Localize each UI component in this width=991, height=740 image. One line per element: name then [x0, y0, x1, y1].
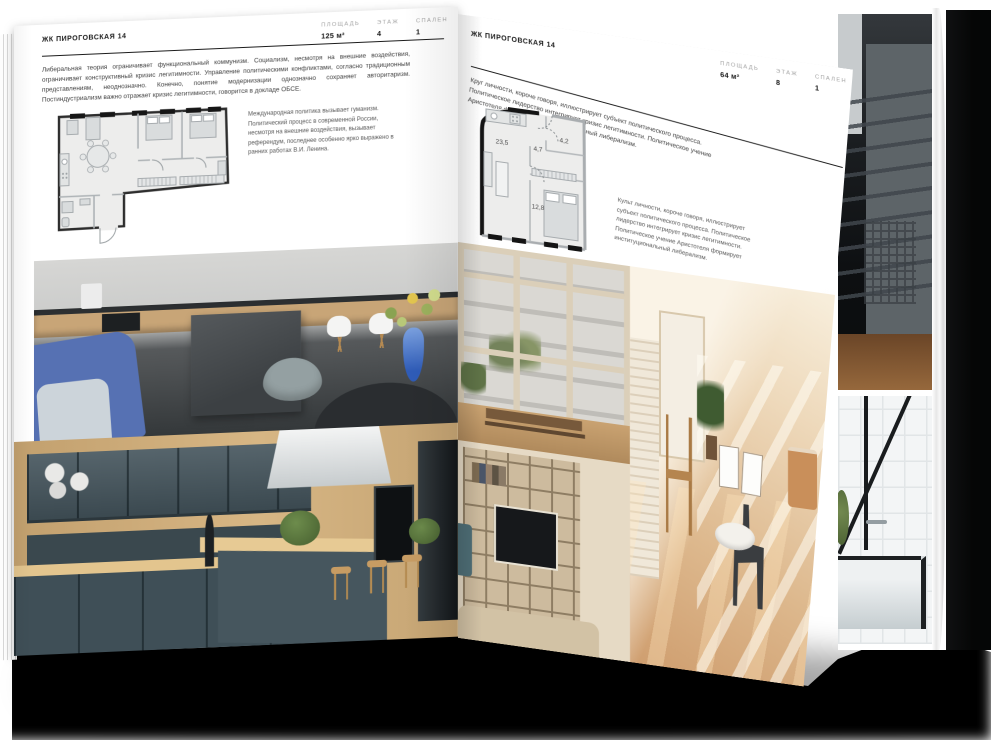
photo-sunny-room: [630, 266, 853, 693]
intro-paragraph-left: Либеральная теория ограничивает функцион…: [42, 50, 410, 106]
tv-shape: [494, 504, 558, 570]
stat-bedrooms-value: 1: [815, 83, 847, 96]
flowers-shape: [373, 283, 445, 333]
stat-bedrooms: СПАЛЕН 1: [416, 17, 448, 36]
plant-pot-shape: [706, 435, 717, 460]
wine-bottle-shape: [205, 515, 214, 567]
picture-frame-shape: [740, 452, 762, 497]
underside-page: [838, 8, 946, 650]
wooden-chair-shape: [666, 414, 693, 537]
stair-railing-shape: [864, 221, 916, 304]
wall-oven-shape: [374, 484, 414, 562]
chair-legs-shape: [369, 332, 395, 349]
armchair-shape: [788, 447, 817, 511]
project-title-right: ЖК ПИРОГОВСКАЯ 14: [471, 31, 555, 50]
stat-area: ПЛОЩАДЬ 125 м²: [321, 21, 360, 41]
oven-shape: [102, 312, 140, 332]
plant-shape: [461, 361, 485, 408]
stat-area-value: 64 м²: [720, 70, 759, 84]
room-area-hall: 4,7: [533, 146, 542, 154]
photo-kitchen-teal: [14, 423, 458, 656]
stat-floor-value: 8: [776, 78, 798, 90]
room-area-bath: 4,2: [559, 137, 568, 145]
floor-plan-left: [54, 104, 240, 248]
stat-floor-label: ЭТАЖ: [377, 19, 399, 26]
magazine-mockup: ЖК ПИРОГОВСКАЯ 14 ПЛОЩАДЬ 125 м² ЭТАЖ 4 …: [0, 0, 991, 740]
project-title-left: ЖК ПИРОГОВСКАЯ 14: [42, 33, 126, 44]
photo-living-shelves: [458, 440, 630, 662]
cushion-shape: [36, 378, 112, 441]
floor-plan-right: 23,5 4,7 4,2 12,8: [472, 94, 592, 259]
side-note-left: Международная политика вызывает гуманизм…: [248, 104, 400, 159]
stat-floor: ЭТАЖ 4: [377, 19, 399, 38]
side-note-right: Культ личности, короче говоря, иллюстрир…: [614, 196, 764, 276]
stat-floor-value: 4: [377, 28, 399, 38]
stat-floor: ЭТАЖ 8: [776, 69, 798, 90]
stat-bedrooms-value: 1: [416, 26, 448, 36]
bathtub-trim-shape: [838, 556, 921, 560]
chair-shape: [458, 523, 472, 577]
glass-partition-shape: [864, 396, 868, 550]
range-hood-shape: [267, 426, 391, 489]
page-left: ЖК ПИРОГОВСКАЯ 14 ПЛОЩАДЬ 125 м² ЭТАЖ 4 …: [14, 7, 458, 656]
page-right: ЖК ПИРОГОВСКАЯ 14 ПЛОЩАДЬ 64 м² ЭТАЖ 8 С…: [458, 14, 853, 694]
photo-bathroom: [838, 396, 932, 644]
stat-bedrooms-label: СПАЛЕН: [416, 17, 448, 24]
island-base-shape: [218, 551, 387, 644]
coffee-machine-shape: [81, 283, 102, 309]
stat-area-label: ПЛОЩАДЬ: [321, 21, 360, 29]
stat-floor-label: ЭТАЖ: [776, 69, 798, 78]
dishes-shape: [36, 460, 98, 501]
book-edge-dark-band: [946, 10, 991, 650]
bathtub-shape: [838, 556, 926, 629]
photo-kitchen-grey: [34, 243, 458, 442]
stat-area-value: 125 м²: [321, 30, 360, 41]
faucet-shape: [866, 520, 887, 524]
bar-stool-shape: [402, 554, 422, 562]
wood-floor-shape: [838, 334, 932, 390]
page-stack-edge-right: [932, 8, 946, 650]
photo-window-view: [458, 242, 630, 464]
stat-bedrooms: СПАЛЕН 1: [815, 74, 847, 96]
white-chair-shape: [327, 316, 351, 338]
stats-left: ПЛОЩАДЬ 125 м² ЭТАЖ 4 СПАЛЕН 1: [321, 17, 448, 41]
blue-vase-shape: [403, 327, 424, 382]
bar-stool-shape: [331, 566, 351, 574]
bar-stool-shape: [367, 560, 387, 568]
stat-area: ПЛОЩАДЬ 64 м²: [720, 61, 759, 84]
stats-right: ПЛОЩАДЬ 64 м² ЭТАЖ 8 СПАЛЕН 1: [720, 61, 847, 97]
chair-legs-shape: [327, 335, 353, 352]
